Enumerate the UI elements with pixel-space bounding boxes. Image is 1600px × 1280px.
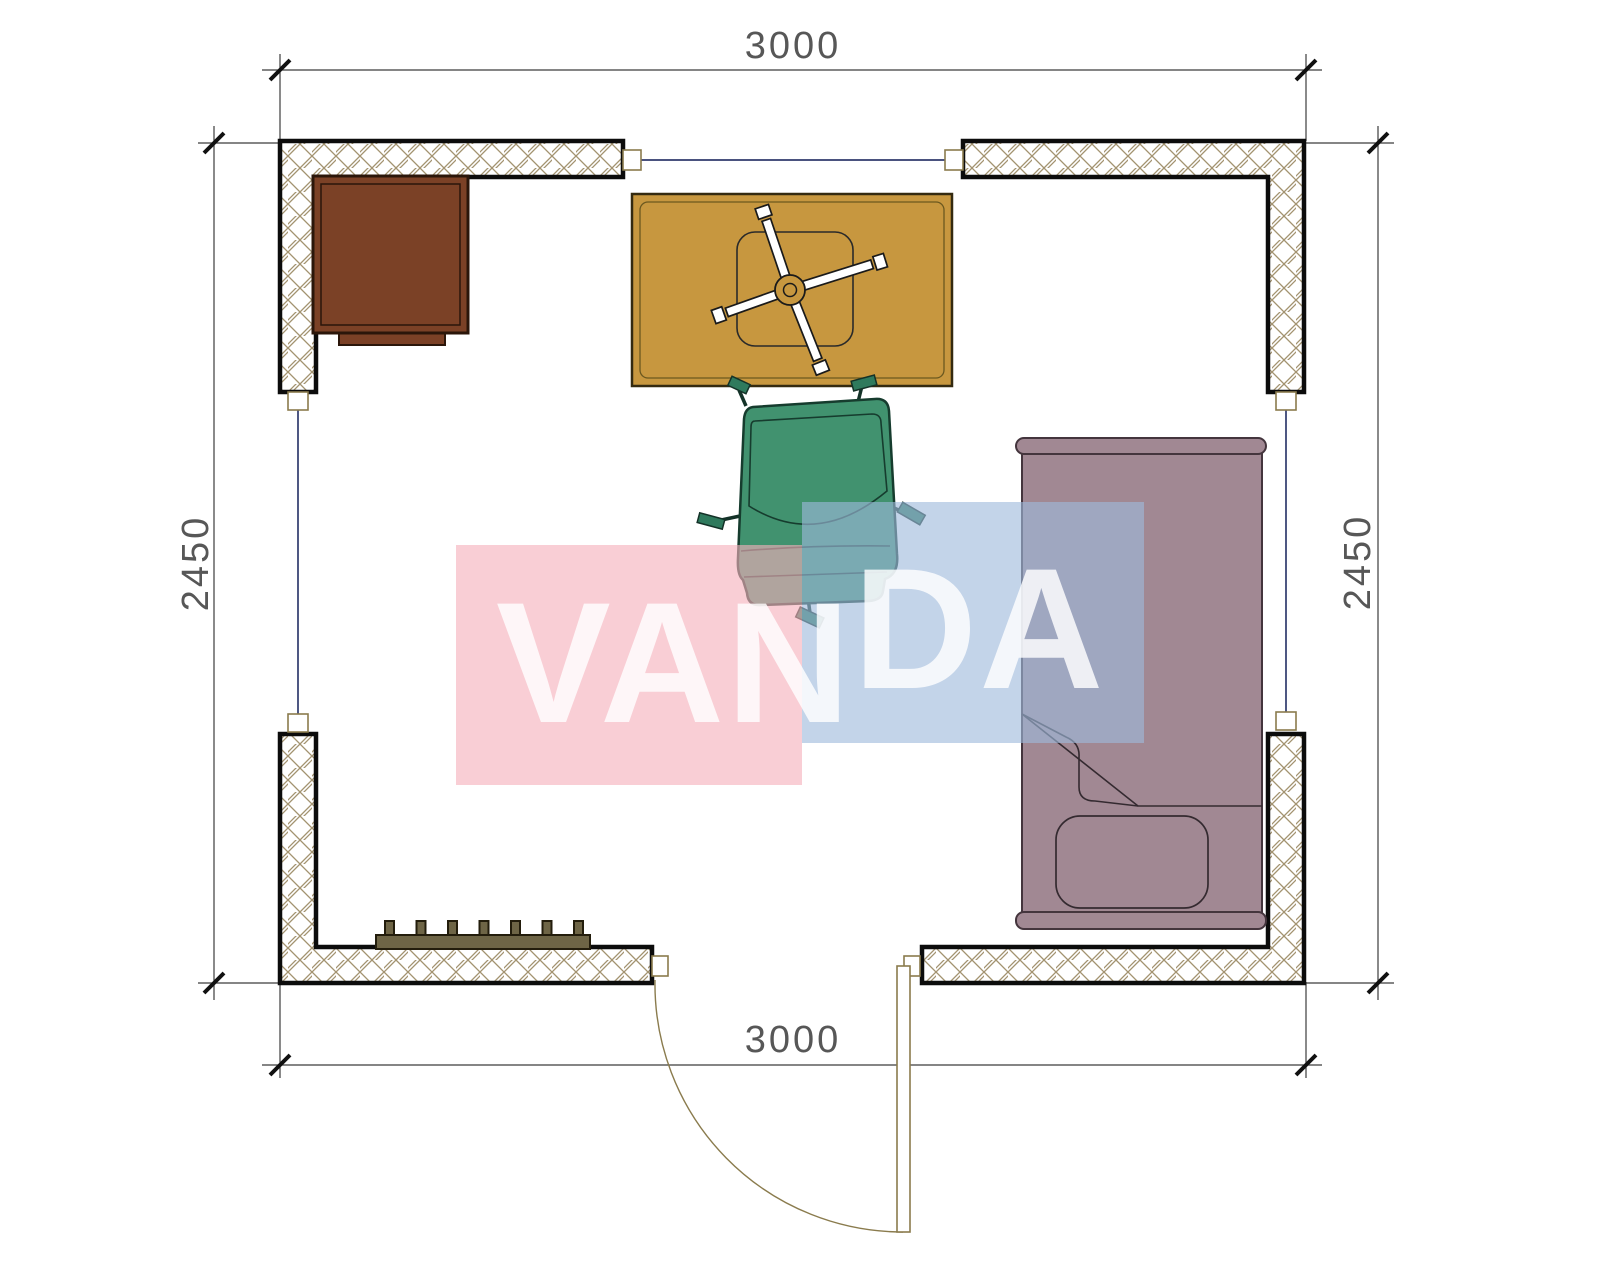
floor-plan-page: 3000 3000 2450 2450 [0, 0, 1600, 1280]
window-end-cap [288, 392, 308, 410]
window-end-cap [1276, 392, 1296, 410]
door-leaf [897, 966, 910, 1232]
window-end-cap [945, 150, 963, 170]
radiator-fin [385, 921, 394, 935]
door-swing-arc [655, 980, 903, 1232]
watermark-text-da: DA [853, 533, 1105, 725]
bed-footboard [1016, 912, 1266, 929]
watermark-text-van: VAN [496, 567, 852, 759]
bed-headboard [1016, 438, 1266, 454]
radiator-fin [480, 921, 489, 935]
door-jamb-cap [652, 956, 668, 976]
window-left [288, 392, 308, 732]
dimension-left: 2450 [175, 126, 278, 1000]
dimension-right: 2450 [1306, 126, 1394, 1000]
cabinet-body [313, 176, 468, 333]
radiator-fin [543, 921, 552, 935]
dimension-label-left: 2450 [175, 515, 217, 612]
chair-caster [697, 513, 725, 529]
dimension-label-bottom: 3000 [745, 1019, 842, 1061]
window-end-cap [623, 150, 641, 170]
dimension-label-top: 3000 [745, 25, 842, 67]
radiator-fin [417, 921, 426, 935]
dimension-label-right: 2450 [1337, 514, 1379, 611]
window-end-cap [1276, 712, 1296, 730]
radiator [376, 921, 590, 949]
floor-plan-canvas: 3000 3000 2450 2450 [0, 0, 1600, 1280]
cabinet [313, 176, 468, 345]
wall-top-right [963, 141, 1304, 392]
radiator-fin [511, 921, 520, 935]
radiator-bar [376, 935, 590, 949]
base-hub [775, 275, 805, 305]
window-right [1276, 392, 1296, 730]
window-top [623, 150, 963, 170]
radiator-fin [574, 921, 583, 935]
dimension-top: 3000 [262, 25, 1322, 141]
window-end-cap [288, 714, 308, 732]
door [652, 956, 920, 1232]
dimension-bottom: 3000 [262, 982, 1322, 1078]
radiator-fin [448, 921, 457, 935]
